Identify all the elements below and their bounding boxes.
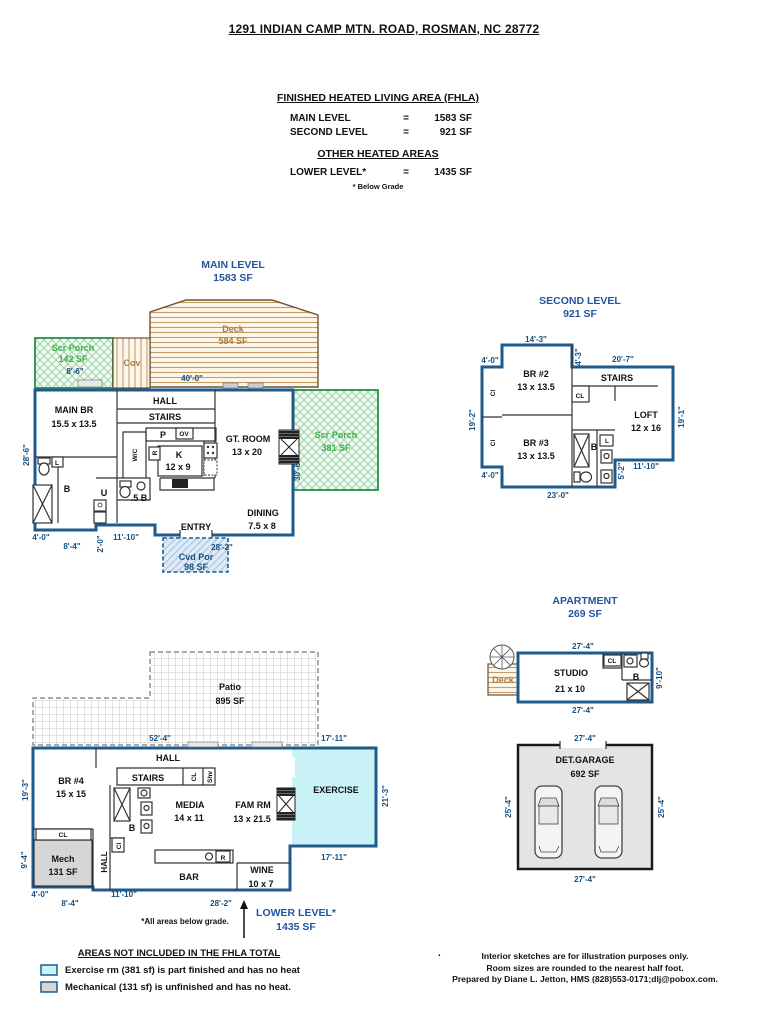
apt-dim-bottom: 27'-4" — [572, 706, 594, 715]
car — [535, 786, 562, 858]
dim-40-0: 40'-0" — [181, 374, 203, 383]
ll-dim-4-0: 4'-0" — [31, 890, 48, 899]
dim-19-3: 19'-3" — [21, 779, 30, 801]
kitchen-label: K — [176, 450, 183, 460]
studio-size: 21 x 10 — [555, 684, 585, 694]
fhla-eq: = — [398, 126, 414, 140]
ll-dim-28-2: 28'-2" — [210, 899, 232, 908]
fhla-value: 921 SF — [414, 126, 472, 140]
second-stairs-label: STAIRS — [601, 373, 633, 383]
br4-size: 15 x 15 — [56, 789, 86, 799]
apartment-plan: APARTMENT 269 SF Deck STUDIO 21 x 10 C — [488, 595, 664, 715]
dim-17-11-bot: 17'-11" — [321, 853, 347, 862]
fam-rm-label: FAM RM — [235, 800, 271, 810]
cov-label: Cov — [123, 358, 140, 368]
fhla-label: SECOND LEVEL — [290, 126, 398, 140]
burner — [207, 452, 209, 454]
br3-label: BR #3 — [523, 438, 549, 448]
fhla-eq: = — [398, 166, 414, 180]
media-size: 14 x 11 — [174, 813, 204, 823]
disclaimer-line: Prepared by Diane L. Jetton, HMS (828)55… — [420, 974, 750, 986]
utility-fixtures — [94, 500, 106, 523]
mech-label: Mech — [51, 854, 74, 864]
wine-label: WINE — [250, 865, 274, 875]
mech-cl-label: CL — [59, 832, 68, 839]
legend-item-mechanical: Mechanical (131 sf) is unfinished and ha… — [40, 981, 340, 993]
apt-cl-label: CL — [608, 658, 617, 665]
lower-bath-fixtures — [112, 788, 152, 852]
dim-28-2: 28'-2" — [211, 543, 233, 552]
bar-fridge-label: R — [221, 855, 226, 862]
fhla-title: FINISHED HEATED LIVING AREA (FHLA) — [268, 92, 488, 104]
patio-door — [252, 742, 282, 747]
garage-dim-top: 27'-4" — [574, 734, 596, 743]
second-level-plan: SECOND LEVEL 921 SF BR #2 13 x 13.5 BR #… — [468, 295, 686, 500]
fhla-value: 1435 SF — [414, 166, 472, 180]
dining-size: 7.5 x 8 — [248, 521, 276, 531]
scr-porch-left-label: Scr Porch — [52, 343, 95, 353]
below-grade-note: *All areas below grade. — [141, 917, 229, 926]
dim-4-0: 4'-0" — [32, 533, 49, 542]
fhla-label: MAIN LEVEL — [290, 112, 398, 126]
page-title: 1291 INDIAN CAMP MTN. ROAD, ROSMAN, NC 2… — [0, 22, 768, 36]
stairs-cl-label: CL — [191, 773, 198, 782]
linen-label: L — [55, 460, 59, 467]
apt-dim-top: 27'-4" — [572, 642, 594, 651]
main-level-plan: MAIN LEVEL 1583 SF Deck 584 SF Scr Porch… — [22, 259, 378, 572]
media-label: MEDIA — [176, 800, 206, 810]
spiral-stair — [490, 645, 514, 669]
stove — [204, 443, 217, 458]
dim-30-6: 30'-6" — [293, 459, 302, 481]
second-cl-label: CL — [576, 393, 585, 400]
bar-label: BAR — [179, 872, 199, 882]
cvd-por-area: 98 SF — [184, 562, 209, 572]
br3-size: 13 x 13.5 — [517, 451, 555, 461]
fhla-row-second: SECOND LEVEL = 921 SF — [268, 126, 488, 140]
hall-label: HALL — [153, 396, 177, 406]
patio — [33, 652, 318, 745]
address-text: 1291 INDIAN CAMP MTN. ROAD, ROSMAN, NC 2… — [229, 22, 540, 36]
main-br-label: MAIN BR — [55, 405, 94, 415]
dim-8-6: 8'-6" — [66, 367, 83, 376]
scr-porch-right-area: 381 SF — [321, 443, 351, 453]
lower-hall-label: HALL — [156, 753, 180, 763]
gt-room-label: GT. ROOM — [226, 434, 271, 444]
bath-label: B — [64, 484, 71, 494]
fam-rm-size: 13 x 21.5 — [233, 814, 271, 824]
dim-4-0-bot: 4'-0" — [481, 471, 498, 480]
fireplace-lower — [277, 788, 295, 820]
apt-bath-label: B — [633, 672, 640, 682]
dim-8-4: 8'-4" — [63, 542, 80, 551]
apt-dim-right: 9'-10" — [655, 667, 664, 689]
scr-porch-right — [293, 390, 378, 490]
loft-label: LOFT — [634, 410, 658, 420]
entry-label: ENTRY — [181, 522, 211, 532]
apartment-area: 269 SF — [568, 608, 602, 620]
second-level-area: 921 SF — [563, 308, 597, 320]
deck-area: 584 SF — [218, 336, 248, 346]
scr-porch-left-area: 142 SF — [58, 354, 88, 364]
dishwasher — [204, 460, 217, 475]
exercise-swatch — [40, 964, 58, 976]
burner — [212, 452, 214, 454]
main-level-area: 1583 SF — [213, 272, 253, 284]
garage-title: DET.GARAGE — [555, 755, 614, 765]
cl-left-top: Cl — [490, 390, 497, 397]
dim-20-7: 20'-7" — [612, 355, 634, 364]
cvd-por-label: Cvd Por — [179, 552, 214, 562]
dim-2-0: 2'-0" — [96, 535, 105, 552]
dim-23-0: 23'-0" — [547, 491, 569, 500]
legend-title: AREAS NOT INCLUDED IN THE FHLA TOTAL — [40, 948, 318, 959]
gt-room-size: 13 x 20 — [232, 447, 262, 457]
utility-label: U — [101, 488, 108, 498]
fhla-eq: = — [398, 112, 414, 126]
hall-v-label: HALL — [100, 851, 109, 872]
dim-11-10: 11'-10" — [113, 533, 139, 542]
fhla-value: 1583 SF — [414, 112, 472, 126]
disclaimer-line: Interior sketches are for illustration p… — [420, 951, 750, 963]
patio-label: Patio — [219, 682, 242, 692]
floorplan-sheet: MAIN LEVEL 1583 SF Deck 584 SF Scr Porch… — [0, 0, 768, 1024]
apartment-title: APARTMENT — [552, 595, 618, 607]
ll-dim-11-10: 11'-10" — [111, 890, 137, 899]
br2-size: 13 x 13.5 — [517, 382, 555, 392]
dim-28-6: 28'-6" — [22, 444, 31, 466]
dim-52-4: 52'-4" — [149, 734, 171, 743]
garage-dim-left: 25'-4" — [504, 796, 513, 818]
disclaimer: Interior sketches are for illustration p… — [420, 951, 750, 986]
dim-11-10-2: 11'-10" — [633, 462, 659, 471]
disclaimer-line: Room sizes are rounded to the nearest ha… — [420, 963, 750, 975]
hall-cl-label: Cl — [116, 843, 123, 850]
legend-text: Mechanical (131 sf) is unfinished and ha… — [65, 982, 291, 993]
dim-9-4: 9'-4" — [20, 851, 29, 868]
dim-5-2: 5'-2" — [617, 462, 626, 479]
kitchen-sink — [172, 479, 188, 488]
br2-label: BR #2 — [523, 369, 549, 379]
lower-bath-label: B — [129, 823, 136, 833]
mech-area: 131 SF — [48, 867, 78, 877]
kitchen-size: 12 x 9 — [165, 462, 190, 472]
main-level-title: MAIN LEVEL — [201, 259, 265, 271]
second-bath-label: B — [591, 442, 598, 452]
mechanical-swatch — [40, 981, 58, 993]
legend-text: Exercise rm (381 sf) is part finished an… — [65, 965, 300, 976]
garage-dim-bottom: 27'-4" — [574, 875, 596, 884]
fridge-label: R — [152, 450, 159, 455]
garage-plan: DET.GARAGE 692 SF 27'-4" 27'-4" 25'-4" 2… — [504, 734, 666, 884]
cl-left-bottom: Cl — [490, 440, 497, 447]
second-linen-label: L — [605, 438, 609, 445]
fhla-exclusions-legend: AREAS NOT INCLUDED IN THE FHLA TOTAL Exe… — [40, 948, 340, 998]
apt-deck-label: Deck — [492, 675, 515, 685]
dim-17-11-top: 17'-11" — [321, 734, 347, 743]
garage-dim-right: 25'-4" — [657, 796, 666, 818]
entry-door-opening — [180, 532, 212, 538]
fhla-label: LOWER LEVEL* — [290, 166, 398, 180]
dim-19-2: 19'-2" — [468, 409, 477, 431]
pantry-label: P — [160, 430, 166, 440]
burner — [207, 446, 209, 448]
deck-door — [223, 383, 238, 388]
oven-label: OV — [179, 431, 189, 438]
porch-door — [78, 380, 102, 387]
dim-14-3: 14'-3" — [525, 335, 547, 344]
loft-size: 12 x 16 — [631, 423, 661, 433]
lower-stairs-label: STAIRS — [132, 773, 164, 783]
deck-label: Deck — [222, 324, 245, 334]
fhla-row-lower: LOWER LEVEL* = 1435 SF — [268, 166, 488, 180]
deck-door — [248, 383, 263, 388]
wic-label: W/C — [132, 448, 139, 461]
area-summary: FINISHED HEATED LIVING AREA (FHLA) MAIN … — [268, 92, 488, 191]
dim-21-3: 21'-3" — [381, 785, 390, 807]
main-br-size: 15.5 x 13.5 — [51, 419, 96, 429]
car — [595, 786, 622, 858]
other-heated-title: OTHER HEATED AREAS — [268, 148, 488, 160]
second-level-title: SECOND LEVEL — [539, 295, 621, 307]
burner — [212, 446, 214, 448]
garage-area: 692 SF — [570, 769, 600, 779]
lower-level-title: LOWER LEVEL* — [256, 907, 337, 919]
studio-label: STUDIO — [554, 668, 588, 678]
dim-19-1: 19'-1" — [677, 406, 686, 428]
patio-door — [188, 742, 218, 747]
exercise-label: EXERCISE — [313, 785, 359, 795]
dim-4-0-top: 4'-0" — [481, 356, 498, 365]
wine-size: 10 x 7 — [248, 879, 273, 889]
stairs-label: STAIRS — [149, 412, 181, 422]
patio-area: 895 SF — [215, 696, 245, 706]
fireplace — [279, 430, 299, 464]
exercise-door-opening — [289, 757, 295, 777]
ll-dim-8-4: 8'-4" — [61, 899, 78, 908]
below-grade-footnote: * Below Grade — [268, 182, 488, 191]
legend-item-exercise: Exercise rm (381 sf) is part finished an… — [40, 964, 340, 976]
level-arrow — [240, 900, 248, 938]
br4-label: BR #4 — [58, 776, 84, 786]
dining-label: DINING — [247, 508, 279, 518]
exercise-room — [292, 747, 376, 846]
lower-level-area: 1435 SF — [276, 921, 316, 933]
shv-label: Shv — [207, 771, 214, 783]
lower-level-plan: Patio 895 SF — [20, 652, 390, 938]
dim-4-3: 4'-3" — [574, 348, 583, 365]
half-bath-label: .5 B — [131, 493, 148, 503]
fhla-row-main: MAIN LEVEL = 1583 SF — [268, 112, 488, 126]
scr-porch-right-label: Scr Porch — [315, 430, 358, 440]
